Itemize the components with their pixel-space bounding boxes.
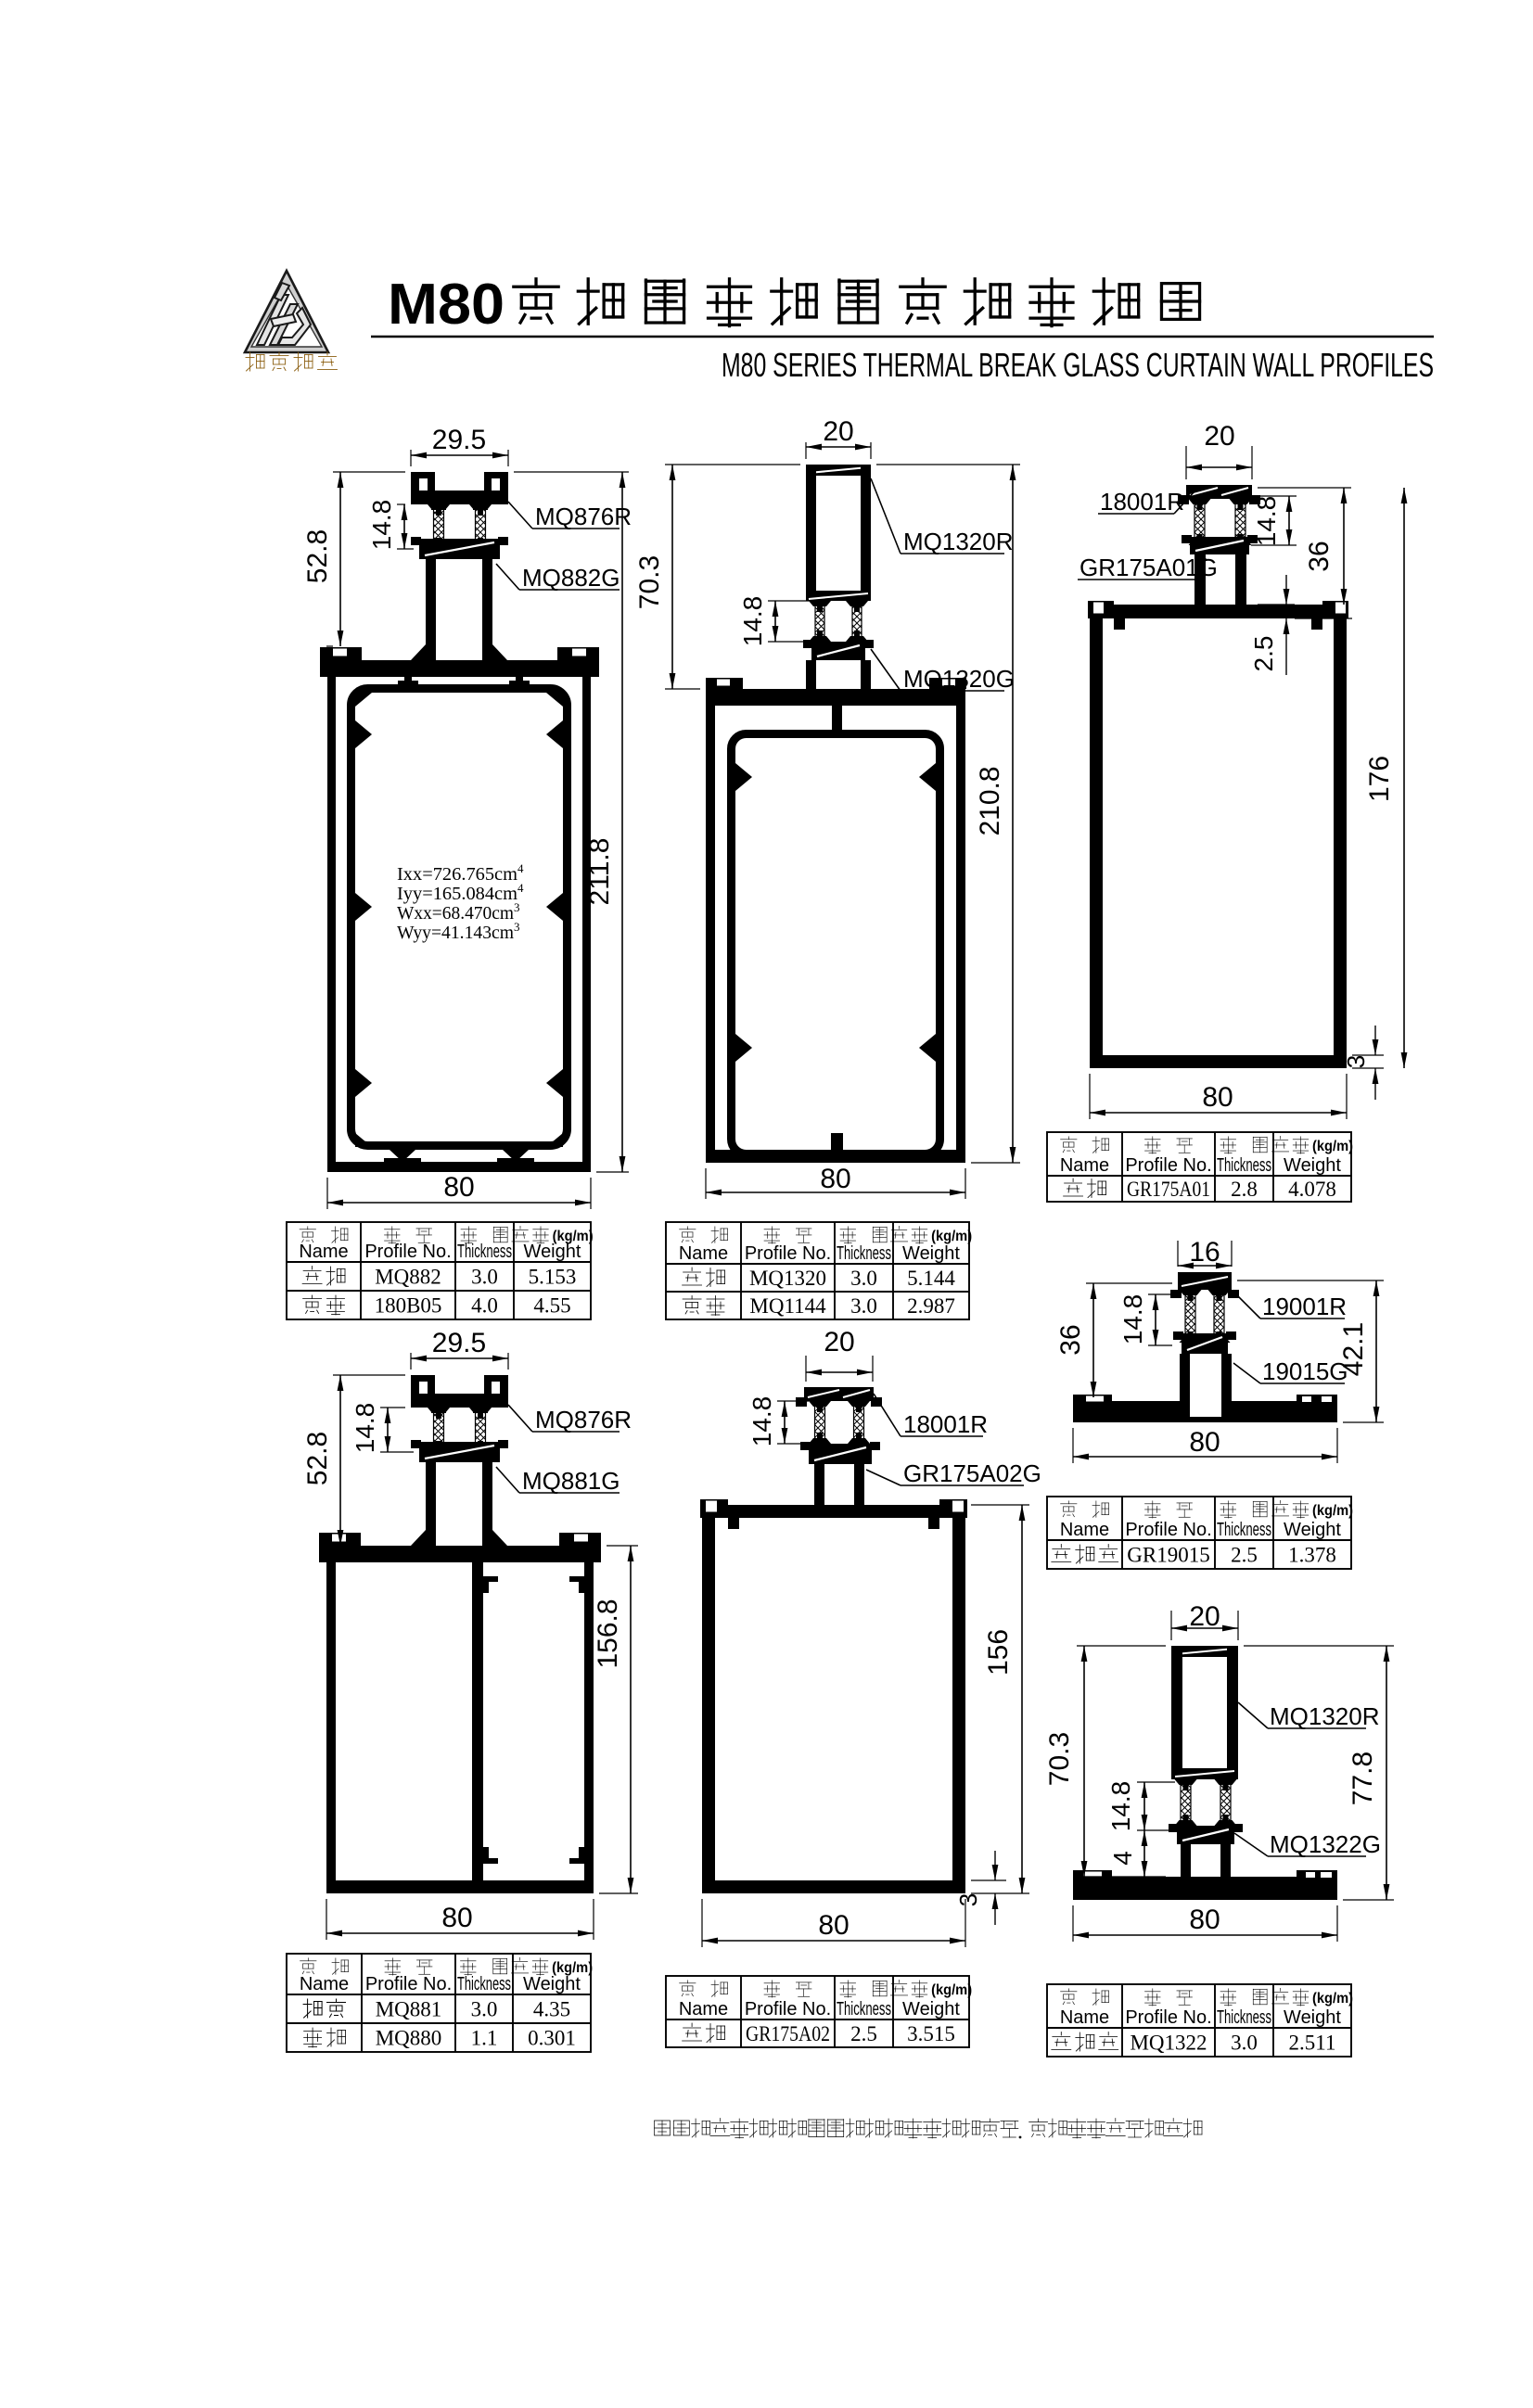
svg-text:Wxx=68.470cm: Wxx=68.470cm xyxy=(397,903,514,924)
svg-text:176: 176 xyxy=(1364,756,1395,802)
svg-text:4.078: 4.078 xyxy=(1288,1178,1336,1201)
svg-text:MQ881G: MQ881G xyxy=(522,1467,620,1495)
svg-text:M80 SERIES THERMAL BREAK GLAS: M80 SERIES THERMAL BREAK GLASS CURTAIN W… xyxy=(722,346,1434,384)
svg-text:20: 20 xyxy=(1189,1601,1220,1632)
svg-text:MQ881: MQ881 xyxy=(376,1998,442,2021)
svg-text:2.5: 2.5 xyxy=(1231,1544,1258,1567)
svg-text:Name: Name xyxy=(300,1974,349,1994)
svg-text:77.8: 77.8 xyxy=(1348,1752,1378,1805)
svg-text:3.0: 3.0 xyxy=(1231,2032,1258,2055)
svg-text:0.301: 0.301 xyxy=(528,2027,576,2050)
svg-text:14.8: 14.8 xyxy=(367,500,396,551)
svg-text:Thickness: Thickness xyxy=(1217,1520,1271,1540)
svg-text:80: 80 xyxy=(1202,1082,1233,1113)
svg-text:29.5: 29.5 xyxy=(432,1328,486,1358)
svg-text:MQ1320R: MQ1320R xyxy=(903,528,1014,555)
svg-text:80: 80 xyxy=(1189,1427,1220,1458)
svg-text:4.55: 4.55 xyxy=(533,1294,570,1318)
svg-text:80: 80 xyxy=(818,1910,849,1941)
svg-text:1.1: 1.1 xyxy=(471,2027,498,2050)
svg-text:Name: Name xyxy=(299,1242,348,1262)
svg-text:(kg/m): (kg/m) xyxy=(1312,1139,1353,1154)
svg-text:Weight: Weight xyxy=(523,1974,581,1994)
svg-text:M80: M80 xyxy=(388,273,505,337)
svg-text:Thickness: Thickness xyxy=(837,1243,891,1264)
svg-text:80: 80 xyxy=(441,1903,472,1933)
svg-text:Profile No.: Profile No. xyxy=(745,1999,831,2019)
svg-text:3: 3 xyxy=(514,920,520,934)
svg-text:(kg/m): (kg/m) xyxy=(931,1229,972,1244)
svg-text:3.0: 3.0 xyxy=(850,1294,877,1318)
svg-text:MQ882G: MQ882G xyxy=(522,564,620,592)
svg-text:MQ876R: MQ876R xyxy=(535,1406,632,1433)
svg-text:211.8: 211.8 xyxy=(584,838,615,906)
svg-text:GR175A02G: GR175A02G xyxy=(903,1459,1041,1487)
svg-text:Profile No.: Profile No. xyxy=(1125,1155,1211,1176)
svg-text:80: 80 xyxy=(820,1164,850,1194)
svg-text:Name: Name xyxy=(679,1243,728,1264)
svg-text:14.8: 14.8 xyxy=(747,1396,776,1447)
svg-text:Profile No.: Profile No. xyxy=(364,1242,451,1262)
svg-text:Profile No.: Profile No. xyxy=(745,1243,831,1264)
svg-text:3: 3 xyxy=(1342,1055,1370,1068)
svg-text:Weight: Weight xyxy=(1284,1155,1341,1176)
svg-text:Profile No.: Profile No. xyxy=(365,1974,452,1994)
svg-text:18001R: 18001R xyxy=(903,1410,988,1438)
svg-text:19001R: 19001R xyxy=(1262,1293,1347,1320)
svg-text:Wyy=41.143cm: Wyy=41.143cm xyxy=(397,923,514,943)
svg-text:20: 20 xyxy=(1204,421,1234,452)
svg-text:4.35: 4.35 xyxy=(533,1998,570,2021)
svg-text:MQ1320: MQ1320 xyxy=(749,1267,826,1290)
svg-text:2.8: 2.8 xyxy=(1231,1178,1258,1201)
svg-text:GR175A01: GR175A01 xyxy=(1127,1178,1210,1201)
svg-text:29.5: 29.5 xyxy=(432,425,486,455)
svg-text:Thickness: Thickness xyxy=(1217,2007,1271,2028)
svg-text:3.0: 3.0 xyxy=(471,1998,498,2021)
svg-text:20: 20 xyxy=(823,416,853,447)
svg-text:80: 80 xyxy=(1189,1905,1220,1935)
svg-text:Profile No.: Profile No. xyxy=(1125,1520,1211,1540)
svg-text:4: 4 xyxy=(517,881,524,895)
svg-text:Ixx=726.765cm: Ixx=726.765cm xyxy=(397,864,517,885)
svg-text:Weight: Weight xyxy=(1284,2007,1341,2028)
svg-text:MQ1320G: MQ1320G xyxy=(903,665,1015,693)
svg-text:Name: Name xyxy=(1060,1155,1109,1176)
svg-text:2.5: 2.5 xyxy=(1249,636,1278,672)
svg-text:70.3: 70.3 xyxy=(634,555,665,609)
svg-text:3.0: 3.0 xyxy=(850,1267,877,1290)
svg-text:Weight: Weight xyxy=(1284,1520,1341,1540)
svg-text:3.515: 3.515 xyxy=(907,2022,955,2045)
svg-text:210.8: 210.8 xyxy=(975,766,1005,835)
svg-text:MQ882: MQ882 xyxy=(375,1266,441,1289)
svg-text:GR175A02: GR175A02 xyxy=(746,2022,830,2045)
svg-text:14.8: 14.8 xyxy=(1118,1294,1147,1345)
svg-text:14.8: 14.8 xyxy=(738,596,767,647)
svg-text:4: 4 xyxy=(517,861,524,875)
svg-text:MQ876R: MQ876R xyxy=(535,503,632,530)
svg-text:180B05: 180B05 xyxy=(375,1294,442,1318)
svg-text:18001R: 18001R xyxy=(1100,488,1184,516)
svg-text:MQ1144: MQ1144 xyxy=(749,1294,826,1318)
svg-text:3: 3 xyxy=(954,1893,982,1906)
svg-text:GR19015: GR19015 xyxy=(1127,1544,1209,1567)
svg-text:3: 3 xyxy=(514,900,520,914)
svg-text:4.0: 4.0 xyxy=(471,1294,498,1318)
svg-text:36: 36 xyxy=(1055,1324,1086,1355)
svg-text:(kg/m): (kg/m) xyxy=(1312,1991,1353,2007)
svg-text:2.5: 2.5 xyxy=(850,2022,877,2045)
svg-text:2.987: 2.987 xyxy=(907,1294,955,1318)
svg-text:14.8: 14.8 xyxy=(1252,496,1281,547)
svg-text:Thickness: Thickness xyxy=(837,1999,891,2019)
svg-text:3.0: 3.0 xyxy=(471,1266,498,1289)
svg-text:MQ880: MQ880 xyxy=(376,2027,442,2050)
svg-text:70.3: 70.3 xyxy=(1044,1732,1075,1786)
svg-text:36: 36 xyxy=(1304,541,1335,571)
svg-text:156: 156 xyxy=(983,1629,1014,1675)
svg-text:Thickness: Thickness xyxy=(457,1974,511,1994)
svg-text:Iyy=165.084cm: Iyy=165.084cm xyxy=(397,884,517,904)
svg-text:19015G: 19015G xyxy=(1262,1357,1348,1385)
svg-text:Weight: Weight xyxy=(902,1999,960,2019)
svg-text:16: 16 xyxy=(1189,1237,1220,1268)
svg-text:156.8: 156.8 xyxy=(593,1599,623,1668)
svg-text:14.8: 14.8 xyxy=(1106,1781,1135,1832)
svg-text:52.8: 52.8 xyxy=(302,1432,333,1485)
svg-text:Name: Name xyxy=(1060,1520,1109,1540)
svg-text:80: 80 xyxy=(443,1172,474,1203)
svg-text:MQ1322G: MQ1322G xyxy=(1270,1830,1381,1858)
svg-text:5.144: 5.144 xyxy=(907,1267,955,1290)
svg-text:52.8: 52.8 xyxy=(302,529,333,583)
svg-text:Profile No.: Profile No. xyxy=(1125,2007,1211,2028)
svg-text:20: 20 xyxy=(824,1327,854,1357)
svg-text:Weight: Weight xyxy=(902,1243,960,1264)
svg-text:GR175A01G: GR175A01G xyxy=(1079,554,1218,581)
svg-text:2.511: 2.511 xyxy=(1289,2032,1336,2055)
svg-text:(kg/m): (kg/m) xyxy=(1312,1503,1353,1519)
svg-text:14.8: 14.8 xyxy=(351,1403,379,1454)
svg-text:4: 4 xyxy=(1108,1851,1137,1866)
svg-text:Name: Name xyxy=(679,1999,728,2019)
svg-text:MQ1322: MQ1322 xyxy=(1130,2032,1207,2055)
svg-text:MQ1320R: MQ1320R xyxy=(1270,1702,1380,1730)
svg-text:Weight: Weight xyxy=(524,1242,581,1262)
svg-text:Thickness: Thickness xyxy=(1217,1155,1271,1176)
svg-text:1.378: 1.378 xyxy=(1288,1544,1336,1567)
svg-text:Name: Name xyxy=(1060,2007,1109,2028)
svg-text:(kg/m): (kg/m) xyxy=(931,1982,972,1998)
svg-text:5.153: 5.153 xyxy=(529,1266,577,1289)
svg-text:Thickness: Thickness xyxy=(457,1242,512,1262)
